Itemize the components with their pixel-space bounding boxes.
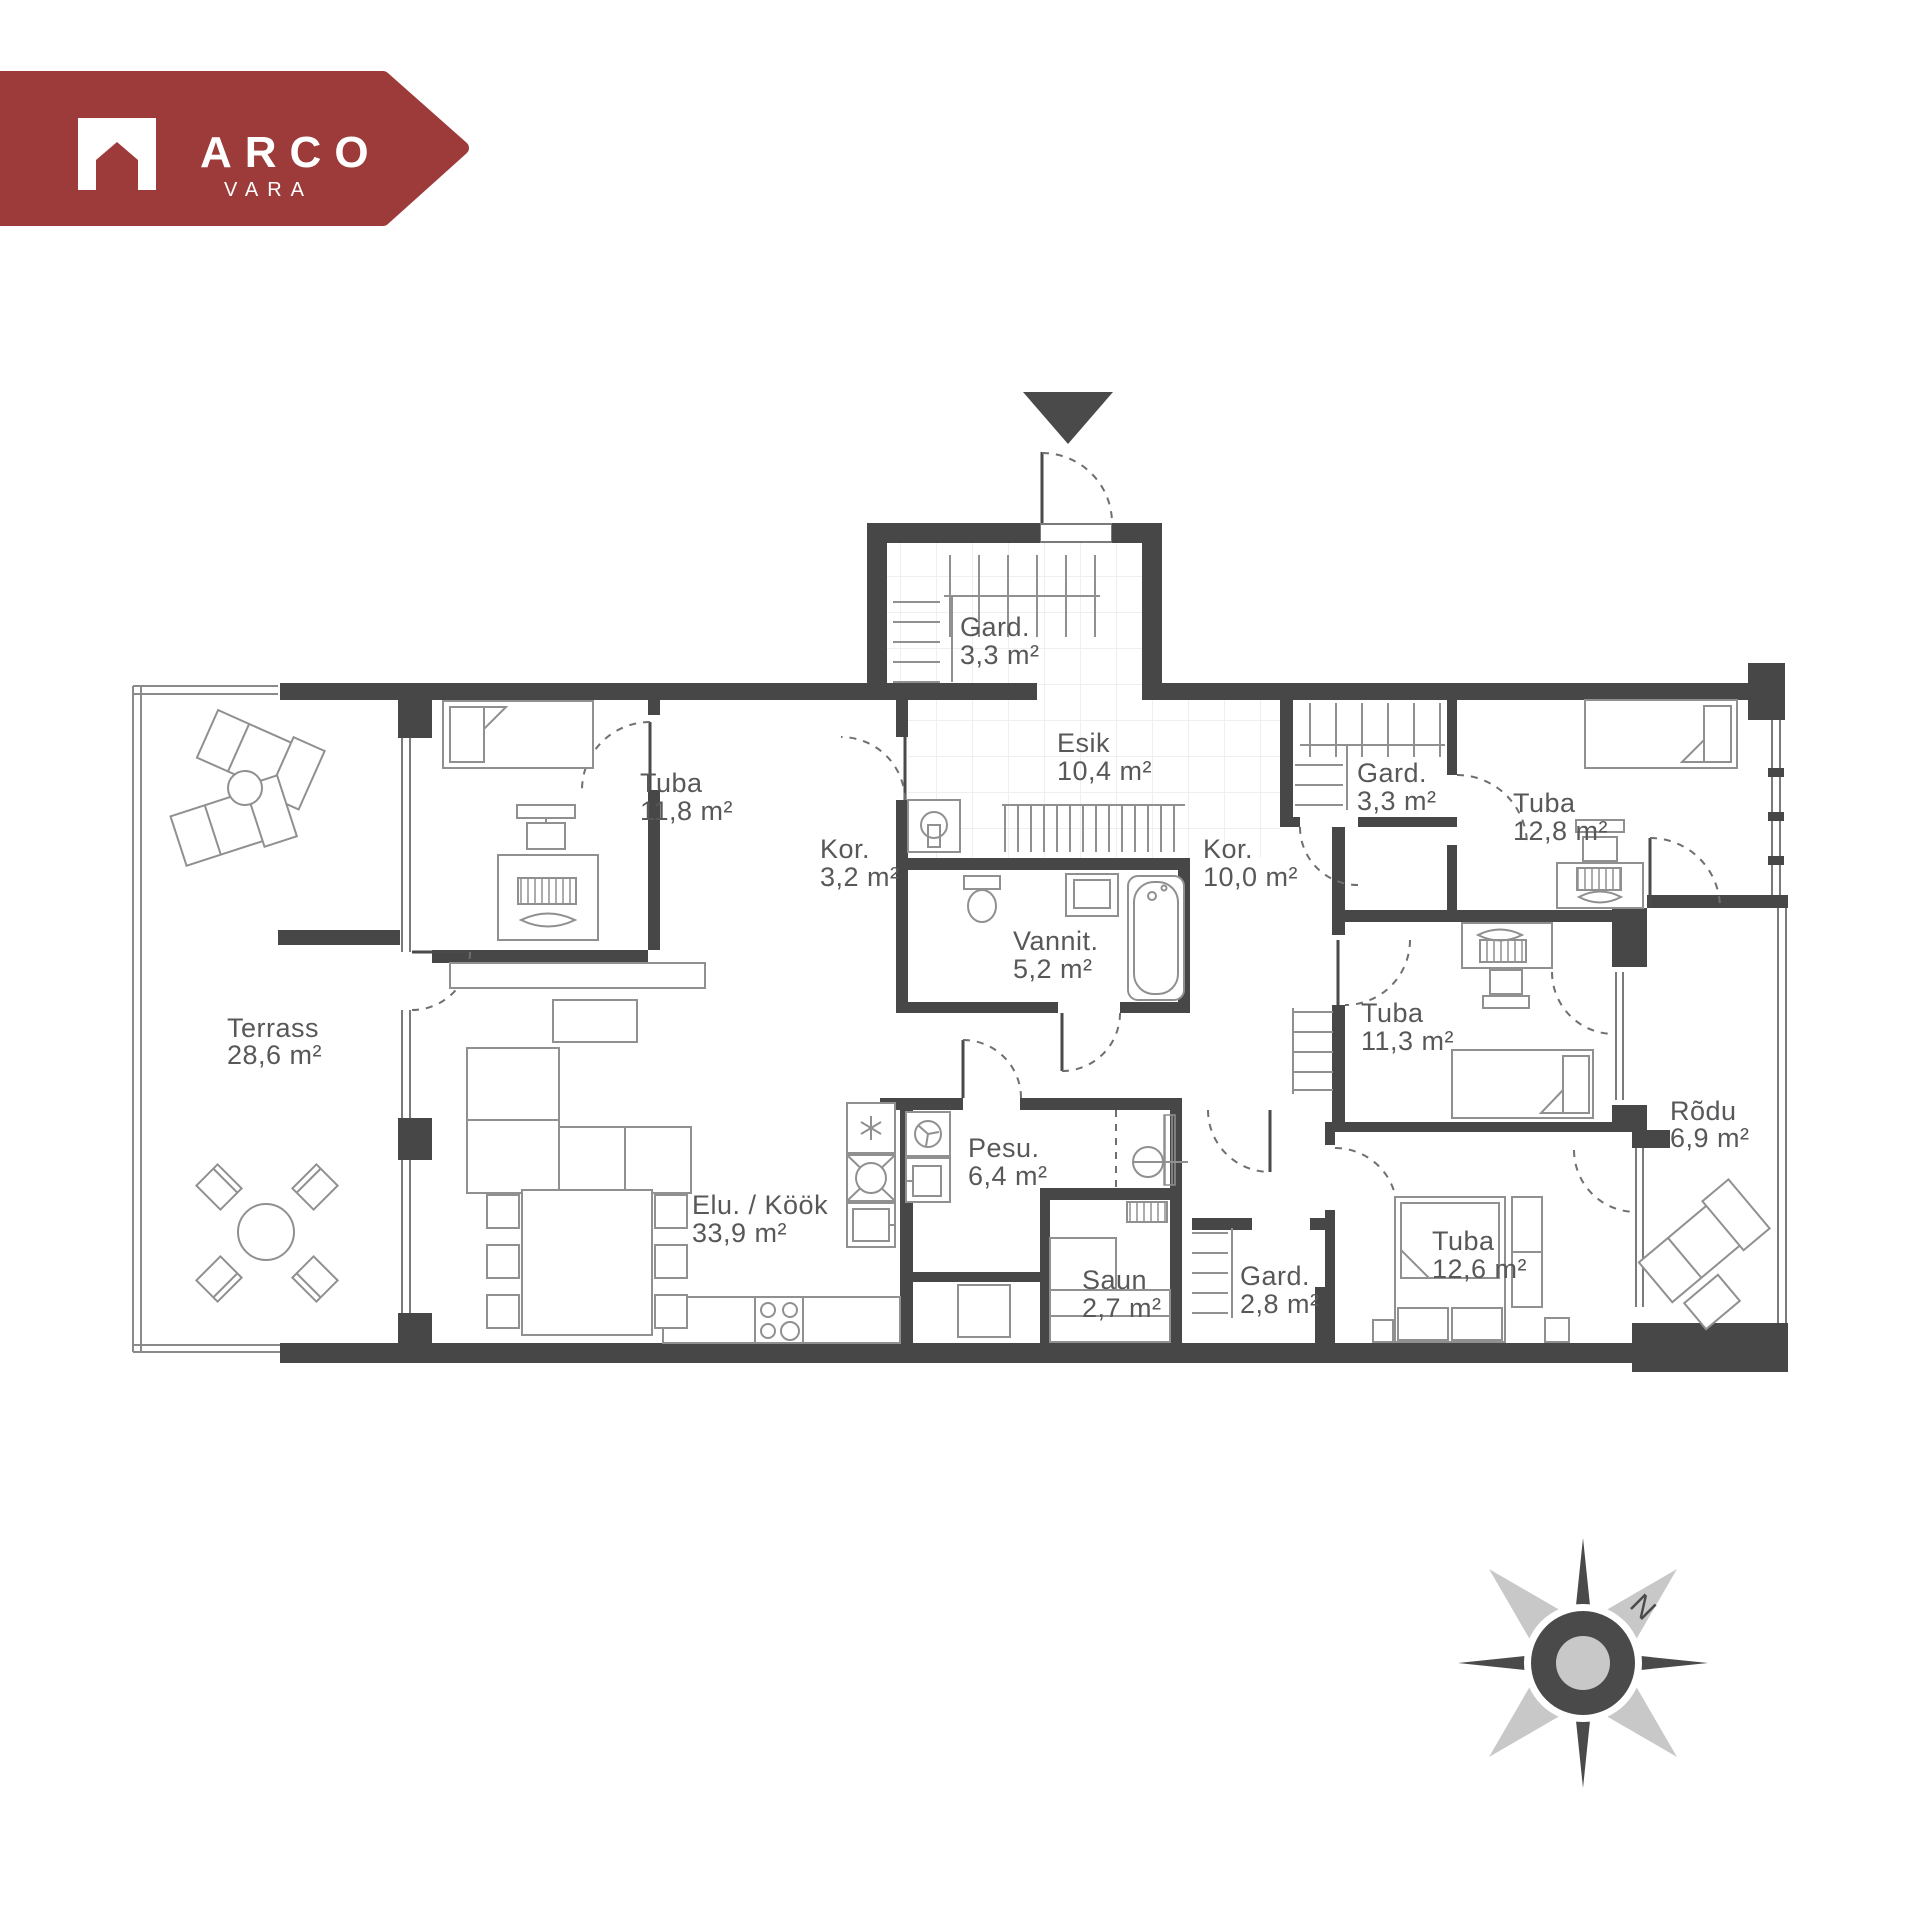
room-label-tuba-ne-name: Tuba [1513, 788, 1576, 818]
room-label-rodu-area: 6,9 m² [1670, 1123, 1750, 1153]
sink-icon [1066, 874, 1118, 916]
bed-icon [443, 701, 593, 768]
washer-icon [906, 1112, 950, 1156]
room-label-esik-area: 10,4 m² [1057, 756, 1152, 786]
hall-closet-icon [908, 800, 960, 852]
fridge-icon [847, 1203, 896, 1247]
terrace-chair-icon [292, 1164, 337, 1209]
dining-table-icon [487, 1190, 687, 1335]
sofa-icon [467, 1048, 691, 1193]
room-label-gard-right-area: 3,3 m² [1357, 786, 1437, 816]
chair-icon [1545, 1318, 1569, 1342]
nightstand-icon [1373, 1320, 1393, 1342]
room-label-kor-main-name: Kor. [1203, 834, 1253, 864]
terrace-furniture [169, 705, 338, 1302]
room-label-elukook-area: 33,9 m² [692, 1218, 787, 1248]
room-label-gard-entry-name: Gard. [960, 612, 1030, 642]
room-label-pesu-name: Pesu. [968, 1133, 1040, 1163]
room-label-terrass-area: 28,6 m² [227, 1040, 322, 1070]
kitchen-tall-units-icon [847, 1103, 896, 1247]
desk-icon [498, 805, 598, 940]
room-label-kor-small-area: 3,2 m² [820, 862, 900, 892]
room-label-tuba-se-name: Tuba [1432, 1226, 1495, 1256]
room-label-saun-area: 2,7 m² [1082, 1293, 1162, 1323]
room-label-vannituba-area: 5,2 m² [1013, 954, 1093, 984]
toilet-icon [964, 876, 1000, 922]
bathtub-icon [1128, 876, 1184, 1000]
wardrobe-icon [1512, 1197, 1542, 1307]
sideboard-icon [450, 963, 705, 988]
dryer-icon [906, 1158, 950, 1202]
bed-icon [1452, 1050, 1593, 1118]
sauna-heater-icon [1127, 1202, 1167, 1222]
compass-rose-icon: N [1458, 1538, 1708, 1788]
room-label-saun-name: Saun [1082, 1265, 1147, 1295]
terrace-chair-icon [292, 1256, 337, 1301]
room-label-gard-right-name: Gard. [1357, 758, 1427, 788]
logo-sub-text: VARA [224, 179, 313, 201]
terrace-chair-icon [196, 1256, 241, 1301]
coffee-table-icon [553, 1000, 637, 1042]
room-label-pesu-area: 6,4 m² [968, 1161, 1048, 1191]
room-label-gard-s-name: Gard. [1240, 1261, 1310, 1291]
room-label-tuba-se-area: 12,6 m² [1432, 1254, 1527, 1284]
wardrobe-icon [1293, 1008, 1333, 1094]
room-label-rodu-name: Rõdu [1670, 1096, 1737, 1126]
terrace-chair-icon [196, 1164, 241, 1209]
room-label-tuba-e-name: Tuba [1361, 998, 1424, 1028]
room-label-tuba-nw-name: Tuba [640, 768, 703, 798]
side-table-icon [228, 771, 262, 805]
entrance-arrow-icon [1023, 392, 1113, 444]
desk-icon [1462, 923, 1552, 1008]
room-label-gard-entry-area: 3,3 m² [960, 640, 1040, 670]
floorplan-page: ARCO VARA [0, 0, 1920, 1920]
room-label-tuba-e-area: 11,3 m² [1361, 1026, 1454, 1056]
logo-brand-text: ARCO [200, 128, 382, 177]
room-label-tuba-nw-area: 11,8 m² [640, 796, 733, 826]
room-label-terrass-name: Terrass [227, 1013, 319, 1043]
terrace-table-icon [238, 1204, 294, 1260]
stove-icon [755, 1297, 803, 1343]
bed-icon [1585, 700, 1737, 768]
room-label-tuba-ne-area: 12,8 m² [1513, 816, 1608, 846]
kitchen-counter-icon [663, 1297, 900, 1343]
room-label-kor-small-name: Kor. [820, 834, 870, 864]
room-label-vannituba-name: Vannit. [1013, 926, 1099, 956]
room-label-gard-s-area: 2,8 m² [1240, 1289, 1320, 1319]
cabinet-icon [958, 1285, 1010, 1337]
floorplan-drawing: ARCO VARA [0, 0, 1920, 1920]
room-label-esik-name: Esik [1057, 728, 1110, 758]
room-label-kor-main-area: 10,0 m² [1203, 862, 1298, 892]
shelf-icon [1192, 1228, 1232, 1318]
room-label-elukook-name: Elu. / Köök [692, 1190, 828, 1220]
kitchen-sink-icon [847, 1155, 895, 1201]
logo-banner: ARCO VARA [0, 78, 462, 219]
house-icon [78, 118, 156, 190]
